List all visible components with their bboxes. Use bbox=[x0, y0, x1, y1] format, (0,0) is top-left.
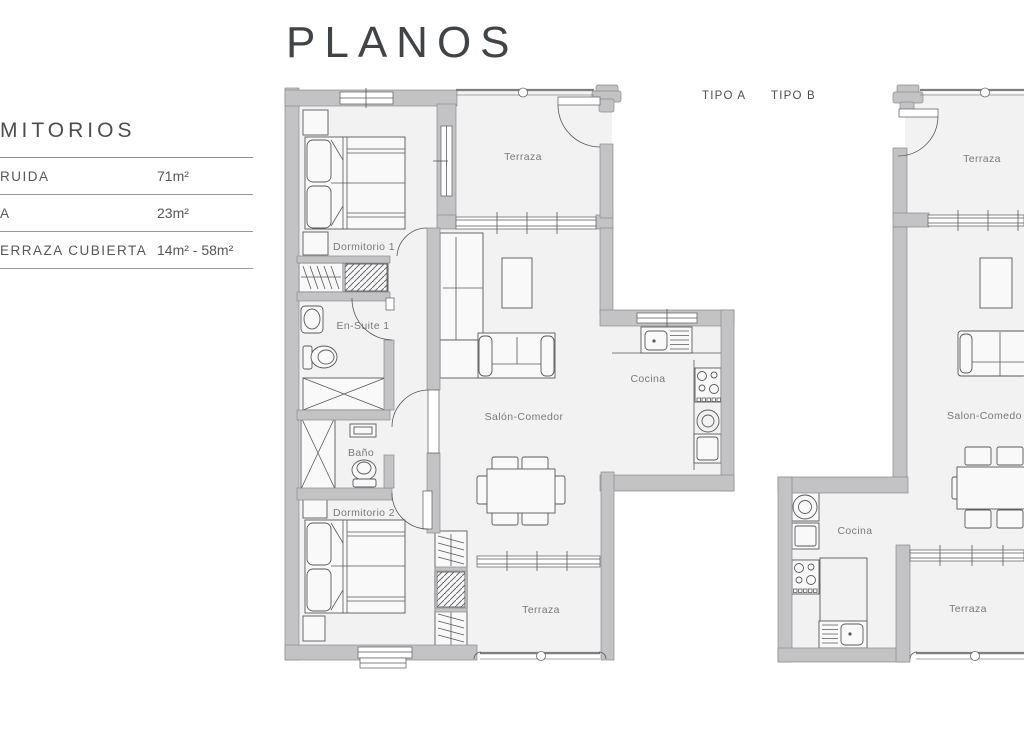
room-label-bano: Baño bbox=[348, 447, 374, 459]
plan-type-b-label: TIPO B bbox=[771, 90, 816, 102]
hall-closet-strip bbox=[435, 531, 467, 649]
spec-label: RUIDA bbox=[0, 169, 157, 184]
spec-table: MITORIOS RUIDA 71m² A 23m² ERRAZA CUBIER… bbox=[0, 118, 253, 269]
spec-row-terraza-cubierta: ERRAZA CUBIERTA 14m² - 58m² bbox=[0, 232, 253, 269]
spec-value: 14m² - 58m² bbox=[157, 242, 233, 258]
room-label-salon-a: Salón-Comedor bbox=[485, 411, 564, 423]
room-label-dormitorio-2: Dormitorio 2 bbox=[333, 507, 395, 519]
room-label-cocina-a: Cocina bbox=[630, 373, 665, 385]
room-label-terraza-a-top: Terraza bbox=[504, 151, 542, 163]
spec-label: ERRAZA CUBIERTA bbox=[0, 243, 157, 258]
plan-type-a-label: TIPO A bbox=[702, 90, 746, 102]
floor-plan-tipo-b: Terraza Salon-Comedo Cocina Terraza bbox=[770, 83, 1024, 683]
spec-value: 71m² bbox=[157, 168, 189, 184]
room-label-salon-b: Salon-Comedo bbox=[947, 410, 1022, 422]
brochure-page: PLANOS MITORIOS RUIDA 71m² A 23m² ERRAZA… bbox=[0, 0, 1024, 732]
spec-label: A bbox=[0, 206, 157, 221]
coffee-table-b bbox=[980, 258, 1012, 308]
spec-value: 23m² bbox=[157, 205, 189, 221]
wardrobe-dormitorio-1 bbox=[299, 263, 388, 292]
room-label-ensuite-1: En-Suite 1 bbox=[336, 320, 389, 332]
room-label-cocina-b: Cocina bbox=[837, 525, 872, 537]
room-label-terraza-b-bottom: Terraza bbox=[949, 603, 987, 615]
floor-plan-tipo-a: Terraza Dormitorio 1 En-Suite 1 Baño Sal… bbox=[283, 83, 738, 673]
room-label-terraza-a-bottom: Terraza bbox=[522, 604, 560, 616]
spec-row-terraza: A 23m² bbox=[0, 195, 253, 232]
room-label-dormitorio-1: Dormitorio 1 bbox=[333, 241, 395, 253]
coffee-table-a bbox=[502, 258, 532, 308]
page-title: PLANOS bbox=[286, 18, 519, 68]
spec-table-header: MITORIOS bbox=[0, 118, 253, 157]
spec-table-rows: RUIDA 71m² A 23m² ERRAZA CUBIERTA 14m² -… bbox=[0, 157, 253, 269]
sofa-b bbox=[958, 331, 1024, 376]
spec-row-superficie: RUIDA 71m² bbox=[0, 158, 253, 195]
room-label-terraza-b-top: Terraza bbox=[963, 153, 1001, 165]
